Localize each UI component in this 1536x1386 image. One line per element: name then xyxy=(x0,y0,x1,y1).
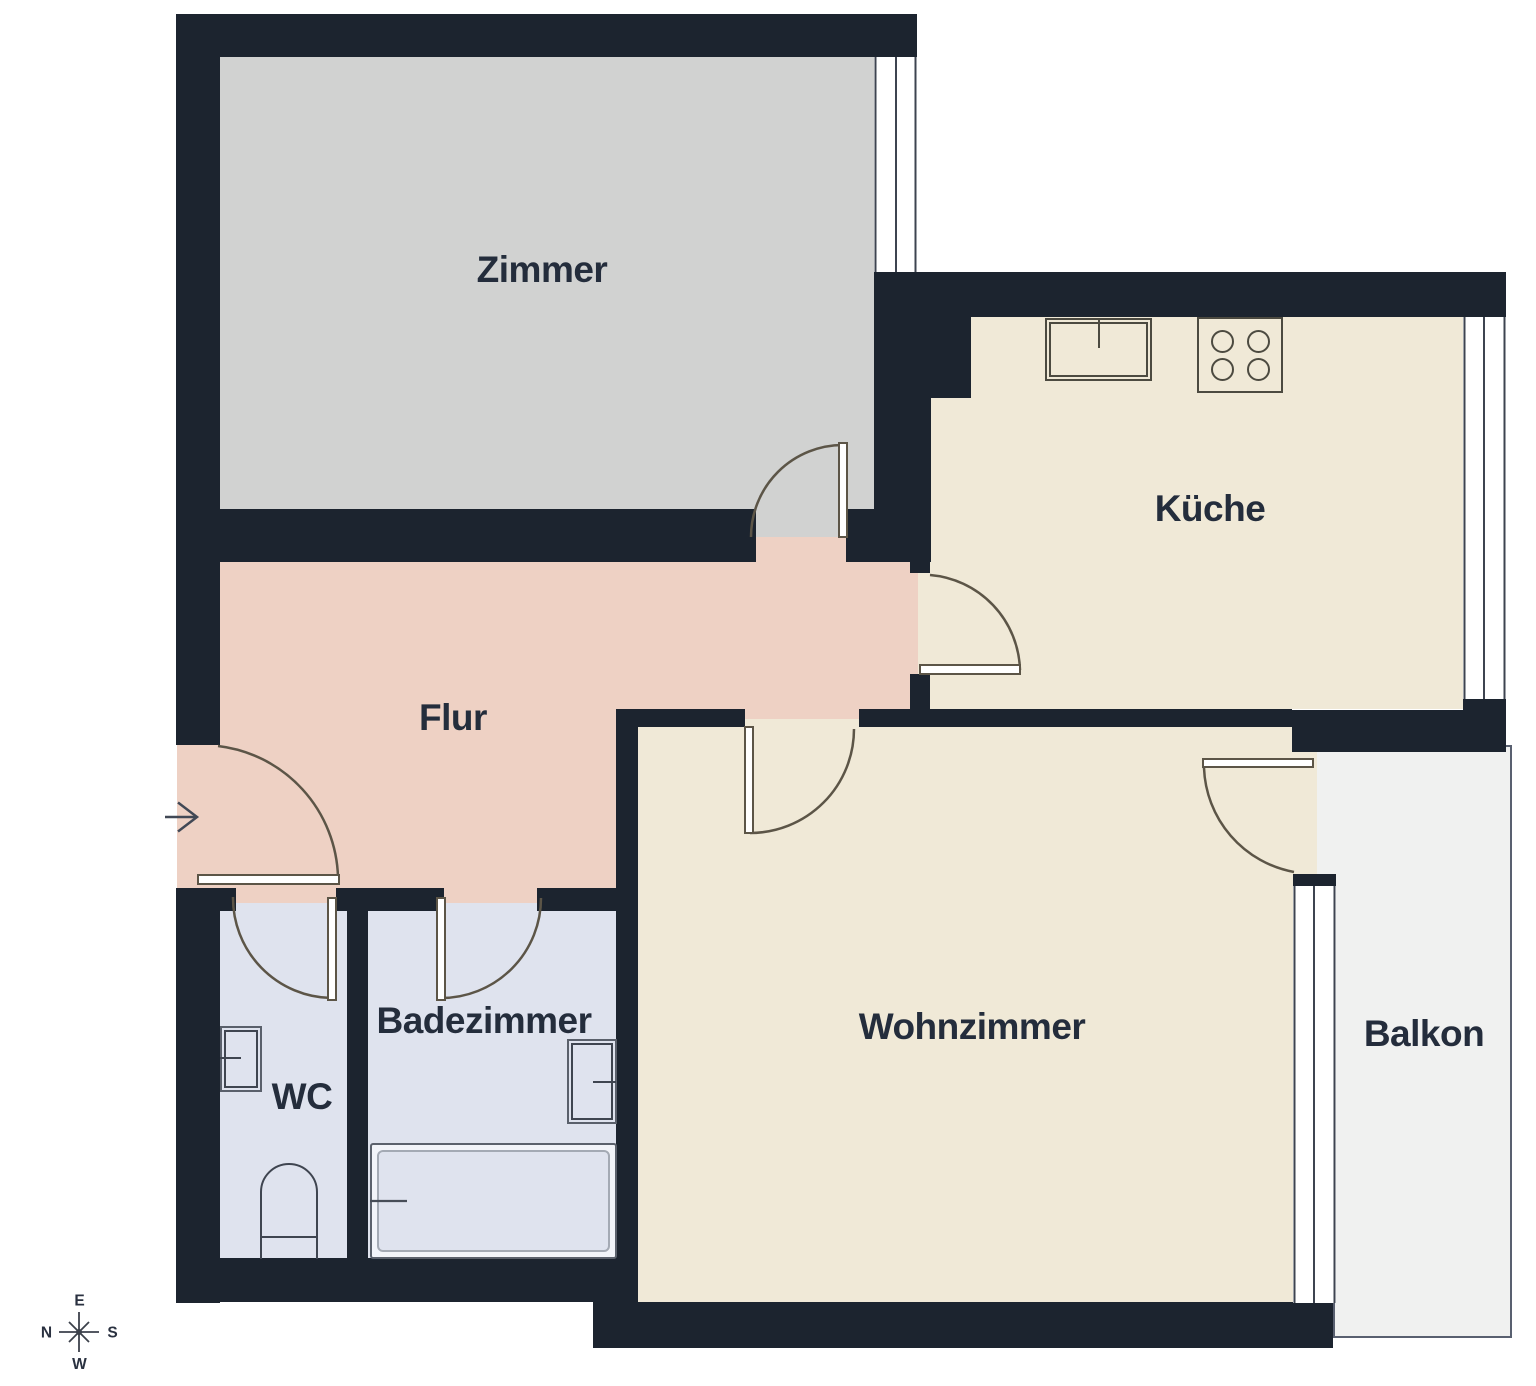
svg-text:E: E xyxy=(74,1293,84,1310)
svg-text:Wohnzimmer: Wohnzimmer xyxy=(859,1006,1086,1047)
svg-text:Küche: Küche xyxy=(1155,488,1266,529)
svg-text:WC: WC xyxy=(272,1076,333,1117)
svg-text:W: W xyxy=(72,1356,87,1373)
svg-text:Flur: Flur xyxy=(419,697,487,738)
svg-text:N: N xyxy=(41,1325,52,1342)
svg-text:Badezimmer: Badezimmer xyxy=(376,1000,591,1041)
svg-text:S: S xyxy=(107,1325,117,1342)
svg-text:Zimmer: Zimmer xyxy=(477,249,608,290)
svg-text:Balkon: Balkon xyxy=(1364,1013,1484,1054)
